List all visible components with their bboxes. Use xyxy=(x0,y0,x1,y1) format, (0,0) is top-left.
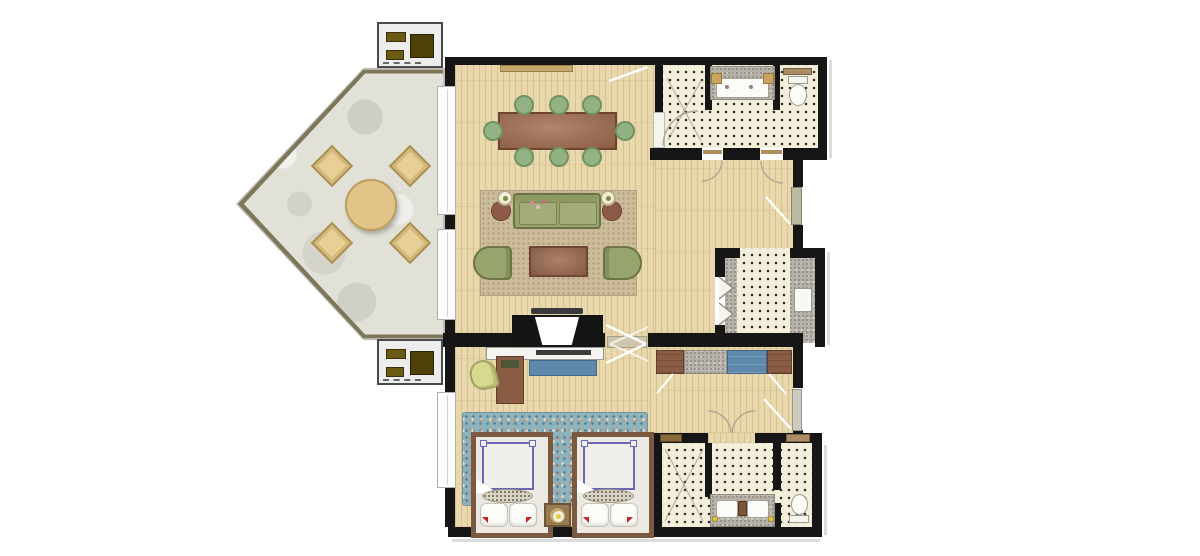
wall-segment xyxy=(715,248,725,277)
pillow-accent xyxy=(583,517,589,523)
wall-segment xyxy=(812,443,822,537)
dining-chair xyxy=(514,95,534,115)
fireplace-media-unit xyxy=(512,315,603,347)
toilet-tank xyxy=(788,76,808,84)
blue-bench xyxy=(529,360,597,376)
vanity-cabinet xyxy=(738,501,747,516)
bed-pillow xyxy=(509,503,537,527)
vanity-basin xyxy=(747,500,769,518)
ac-vent-dashes xyxy=(383,62,421,64)
wall-segment xyxy=(773,443,781,490)
table-lamp xyxy=(497,190,513,206)
wall-top xyxy=(448,57,827,65)
wall-segment xyxy=(818,57,827,160)
dining-chair xyxy=(582,95,602,115)
ac-component xyxy=(410,34,434,58)
wall-divider xyxy=(648,333,803,347)
floor-plan-canvas xyxy=(0,0,1200,556)
wall-segment xyxy=(793,153,803,187)
double-door-threshold xyxy=(607,336,647,348)
bed-bolster xyxy=(583,489,634,503)
plan-shadow xyxy=(824,445,827,535)
wardrobe-bench-blue xyxy=(727,350,767,374)
entry-door-leaf xyxy=(791,187,802,225)
plan-shadow xyxy=(452,539,820,542)
sofa-back xyxy=(516,195,598,202)
faucet xyxy=(725,85,729,89)
wall-segment xyxy=(445,347,455,392)
ac-component xyxy=(386,349,406,359)
door-threshold xyxy=(786,434,810,442)
table-lamp xyxy=(600,190,616,206)
sofa-flower-decor xyxy=(536,205,540,209)
vanity-accessory xyxy=(763,73,774,84)
bed-pillow xyxy=(610,503,638,527)
dining-chair xyxy=(514,147,534,167)
ac-component xyxy=(386,50,404,60)
sofa-flower-decor xyxy=(530,201,534,205)
connecting-door-leaf xyxy=(792,389,802,431)
pillow-accent xyxy=(627,517,633,523)
sofa-flower-decor xyxy=(542,200,546,204)
plan-shadow xyxy=(829,60,832,158)
terrace-floor xyxy=(238,68,443,340)
ac-component xyxy=(386,32,406,42)
wall-segment xyxy=(650,148,702,160)
wall-segment xyxy=(705,443,712,497)
foyer-tile-floor xyxy=(737,248,790,340)
coffee-table xyxy=(529,246,588,277)
dining-chair xyxy=(483,121,503,141)
dining-chair xyxy=(582,147,602,167)
wall-segment xyxy=(445,57,455,86)
wall-segment xyxy=(445,488,455,527)
lounge-armchair xyxy=(603,246,642,280)
fireplace-niche xyxy=(534,317,580,345)
sconce-lamp xyxy=(712,516,718,522)
terrace-window xyxy=(437,229,456,320)
sofa xyxy=(513,193,601,229)
desk xyxy=(496,356,524,404)
sconce-lamp xyxy=(768,516,774,522)
ac-vent-dashes xyxy=(383,379,421,381)
shelf xyxy=(783,68,812,75)
wardrobe-luggage-rack xyxy=(684,350,727,374)
bed-blanket xyxy=(583,442,635,490)
dining-table xyxy=(498,112,617,150)
ac-component xyxy=(410,351,434,375)
terrace xyxy=(236,66,445,342)
wall-segment xyxy=(815,250,825,347)
door-threshold xyxy=(660,434,682,442)
tv-bar xyxy=(531,308,583,314)
toilet-bowl xyxy=(789,84,807,106)
bed-bolster xyxy=(482,489,533,503)
bedroom-window xyxy=(437,392,456,488)
twin-bed xyxy=(471,432,553,538)
vanity-basin xyxy=(716,500,738,518)
vanity-basin xyxy=(716,78,769,98)
dining-chair xyxy=(549,95,569,115)
bed-pillow xyxy=(581,503,609,527)
dining-chair xyxy=(615,121,635,141)
toilet-tank xyxy=(789,515,809,523)
foyer-cabinet-fixture xyxy=(794,288,812,312)
pillow-accent xyxy=(482,517,488,523)
door-threshold xyxy=(761,150,782,154)
toilet-bowl xyxy=(791,494,808,515)
wall-segment xyxy=(723,148,760,160)
door-threshold xyxy=(703,150,722,154)
bath-doorway-floor xyxy=(708,433,755,443)
wardrobe-wood-section xyxy=(656,350,684,374)
hall-floor xyxy=(655,253,715,333)
vanity-accessory xyxy=(711,73,722,84)
bath-door-threshold xyxy=(653,112,665,148)
desk-accessory xyxy=(501,360,519,368)
ac-component xyxy=(386,367,404,377)
twin-bed xyxy=(572,432,654,538)
nightstand-lamp xyxy=(549,507,566,524)
lamp-bulb xyxy=(556,514,561,519)
bedroom-tv-bar xyxy=(536,350,591,355)
wall-segment xyxy=(445,215,455,229)
sofa-cushion xyxy=(559,202,597,225)
plan-shadow xyxy=(827,252,830,345)
wall-segment xyxy=(655,65,663,112)
wall-console xyxy=(500,65,573,72)
faucet xyxy=(749,85,753,89)
lounge-armchair xyxy=(473,246,512,280)
ac-unit-bottom xyxy=(377,339,443,385)
bed-blanket xyxy=(482,442,534,490)
bed-pillow xyxy=(480,503,508,527)
entry-corridor-floor xyxy=(655,160,793,253)
wardrobe-wood-section xyxy=(767,350,792,374)
dining-chair xyxy=(549,147,569,167)
ac-unit-top xyxy=(377,22,443,68)
terrace-round-table xyxy=(345,179,397,231)
wall-segment xyxy=(793,347,803,388)
wall-segment xyxy=(783,148,827,160)
terrace-window xyxy=(437,86,456,215)
pillow-accent xyxy=(526,517,532,523)
